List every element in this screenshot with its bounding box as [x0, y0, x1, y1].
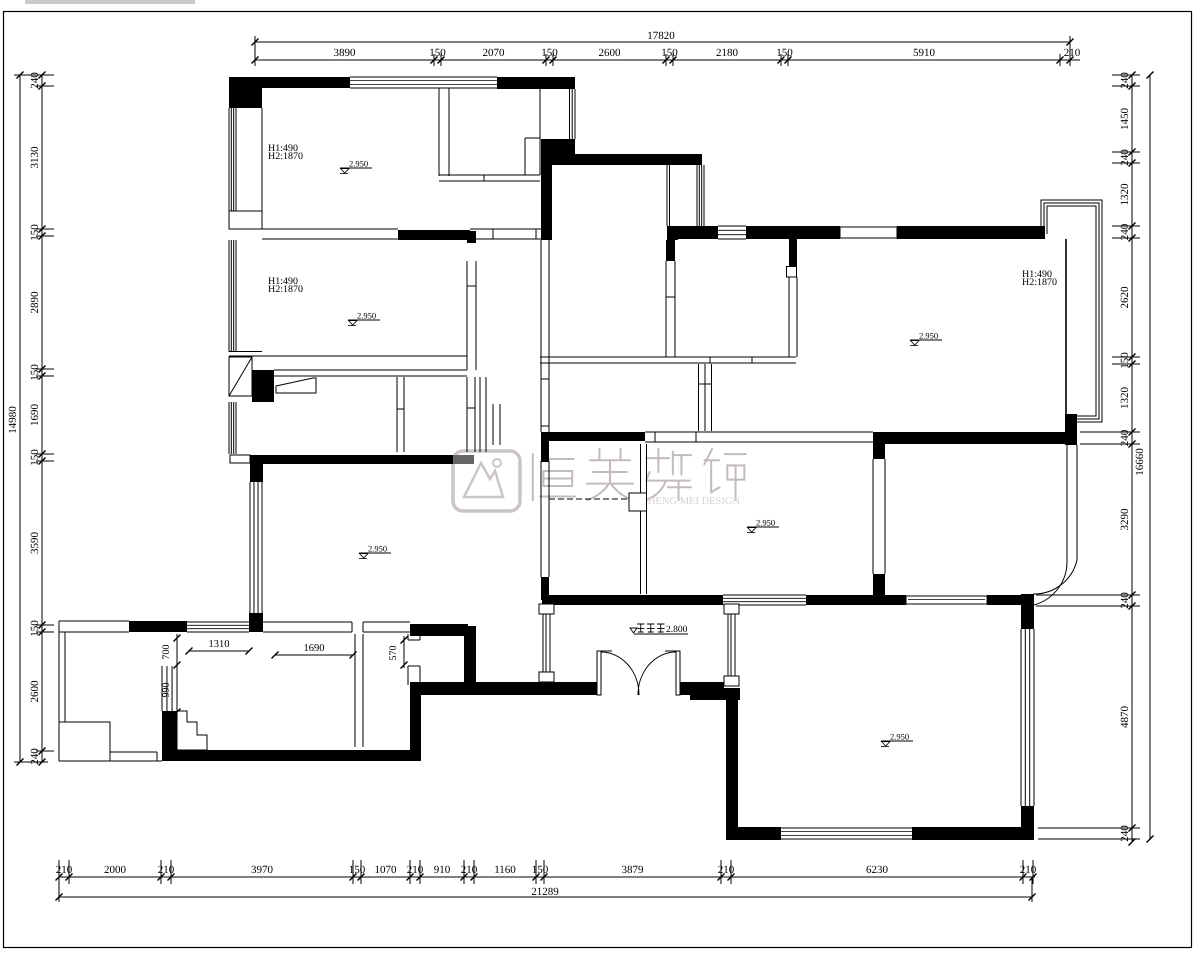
svg-text:210: 210 [1064, 47, 1081, 59]
svg-text:210: 210 [1020, 864, 1037, 876]
svg-text:16660: 16660 [1134, 448, 1146, 476]
svg-text:2.950: 2.950 [756, 518, 775, 528]
svg-text:2600: 2600 [29, 680, 41, 703]
svg-text:2.950: 2.950 [919, 331, 938, 341]
svg-text:3890: 3890 [334, 47, 357, 59]
svg-text:21289: 21289 [531, 886, 559, 898]
svg-text:H2:1870: H2:1870 [1022, 277, 1057, 288]
svg-text:2.950: 2.950 [890, 732, 909, 742]
svg-text:1320: 1320 [1119, 387, 1131, 410]
svg-text:17820: 17820 [647, 30, 675, 42]
svg-text:2070: 2070 [483, 47, 506, 59]
svg-text:910: 910 [434, 864, 451, 876]
svg-text:210: 210 [718, 864, 735, 876]
svg-text:1450: 1450 [1119, 108, 1131, 131]
svg-text:2890: 2890 [29, 291, 41, 314]
svg-text:3590: 3590 [29, 532, 41, 555]
svg-text:6230: 6230 [866, 864, 889, 876]
svg-text:1320: 1320 [1119, 183, 1131, 206]
svg-text:3970: 3970 [251, 864, 274, 876]
svg-text:240: 240 [29, 748, 41, 765]
svg-text:HENG MEI DESIGN: HENG MEI DESIGN [648, 496, 741, 507]
svg-text:14980: 14980 [7, 406, 19, 434]
svg-text:3130: 3130 [29, 146, 41, 169]
svg-text:210: 210 [56, 864, 73, 876]
svg-text:210: 210 [407, 864, 424, 876]
svg-text:570: 570 [388, 646, 399, 661]
svg-text:5910: 5910 [913, 47, 936, 59]
svg-text:2.950: 2.950 [368, 544, 387, 554]
svg-text:3879: 3879 [622, 864, 645, 876]
svg-text:1310: 1310 [209, 639, 230, 650]
svg-text:3290: 3290 [1119, 508, 1131, 531]
svg-text:H2:1870: H2:1870 [268, 284, 303, 295]
svg-text:210: 210 [461, 864, 478, 876]
svg-text:990: 990 [161, 683, 172, 698]
svg-text:2000: 2000 [104, 864, 127, 876]
svg-text:2180: 2180 [716, 47, 739, 59]
svg-text:2600: 2600 [599, 47, 622, 59]
svg-text:1690: 1690 [29, 404, 41, 427]
svg-text:2620: 2620 [1119, 286, 1131, 309]
svg-text:700: 700 [161, 645, 172, 660]
svg-text:2.950: 2.950 [349, 159, 368, 169]
svg-text:210: 210 [158, 864, 175, 876]
svg-text:1070: 1070 [375, 864, 398, 876]
svg-text:1690: 1690 [304, 643, 325, 654]
svg-text:2.950: 2.950 [357, 311, 376, 321]
svg-text:4870: 4870 [1119, 706, 1131, 729]
svg-text:H2:1870: H2:1870 [268, 151, 303, 162]
svg-text:1160: 1160 [494, 864, 516, 876]
